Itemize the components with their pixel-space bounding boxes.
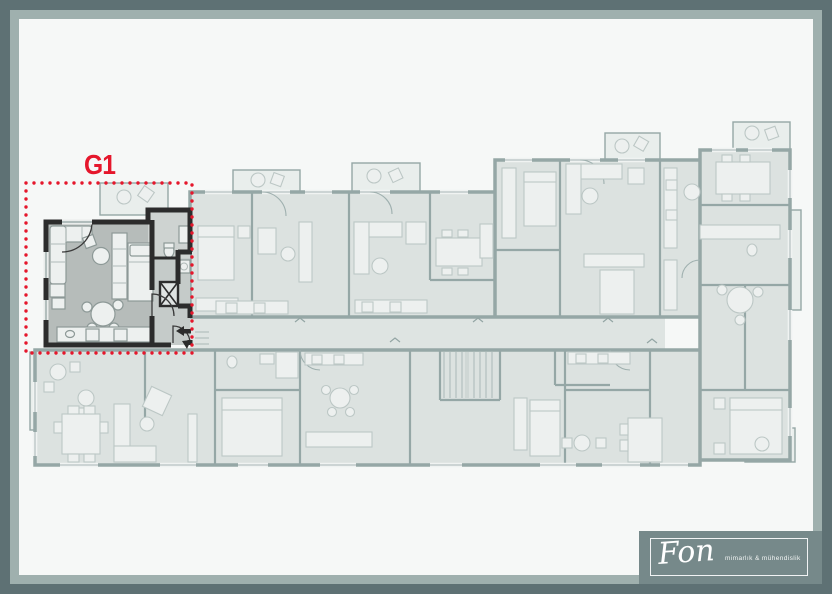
floor-plan-canvas: [0, 0, 832, 594]
logo-brand: Fon: [657, 530, 716, 576]
corridor: [190, 317, 665, 350]
unit-label: G1: [84, 149, 115, 181]
dining-table: [628, 418, 662, 462]
logo-tagline: mimarlık & mühendislik: [725, 555, 801, 562]
coffee-table: [93, 248, 110, 265]
dining-table: [91, 302, 115, 326]
company-logo: Fon mimarlık & mühendislik: [639, 531, 822, 584]
unit-g1[interactable]: [44, 208, 193, 349]
